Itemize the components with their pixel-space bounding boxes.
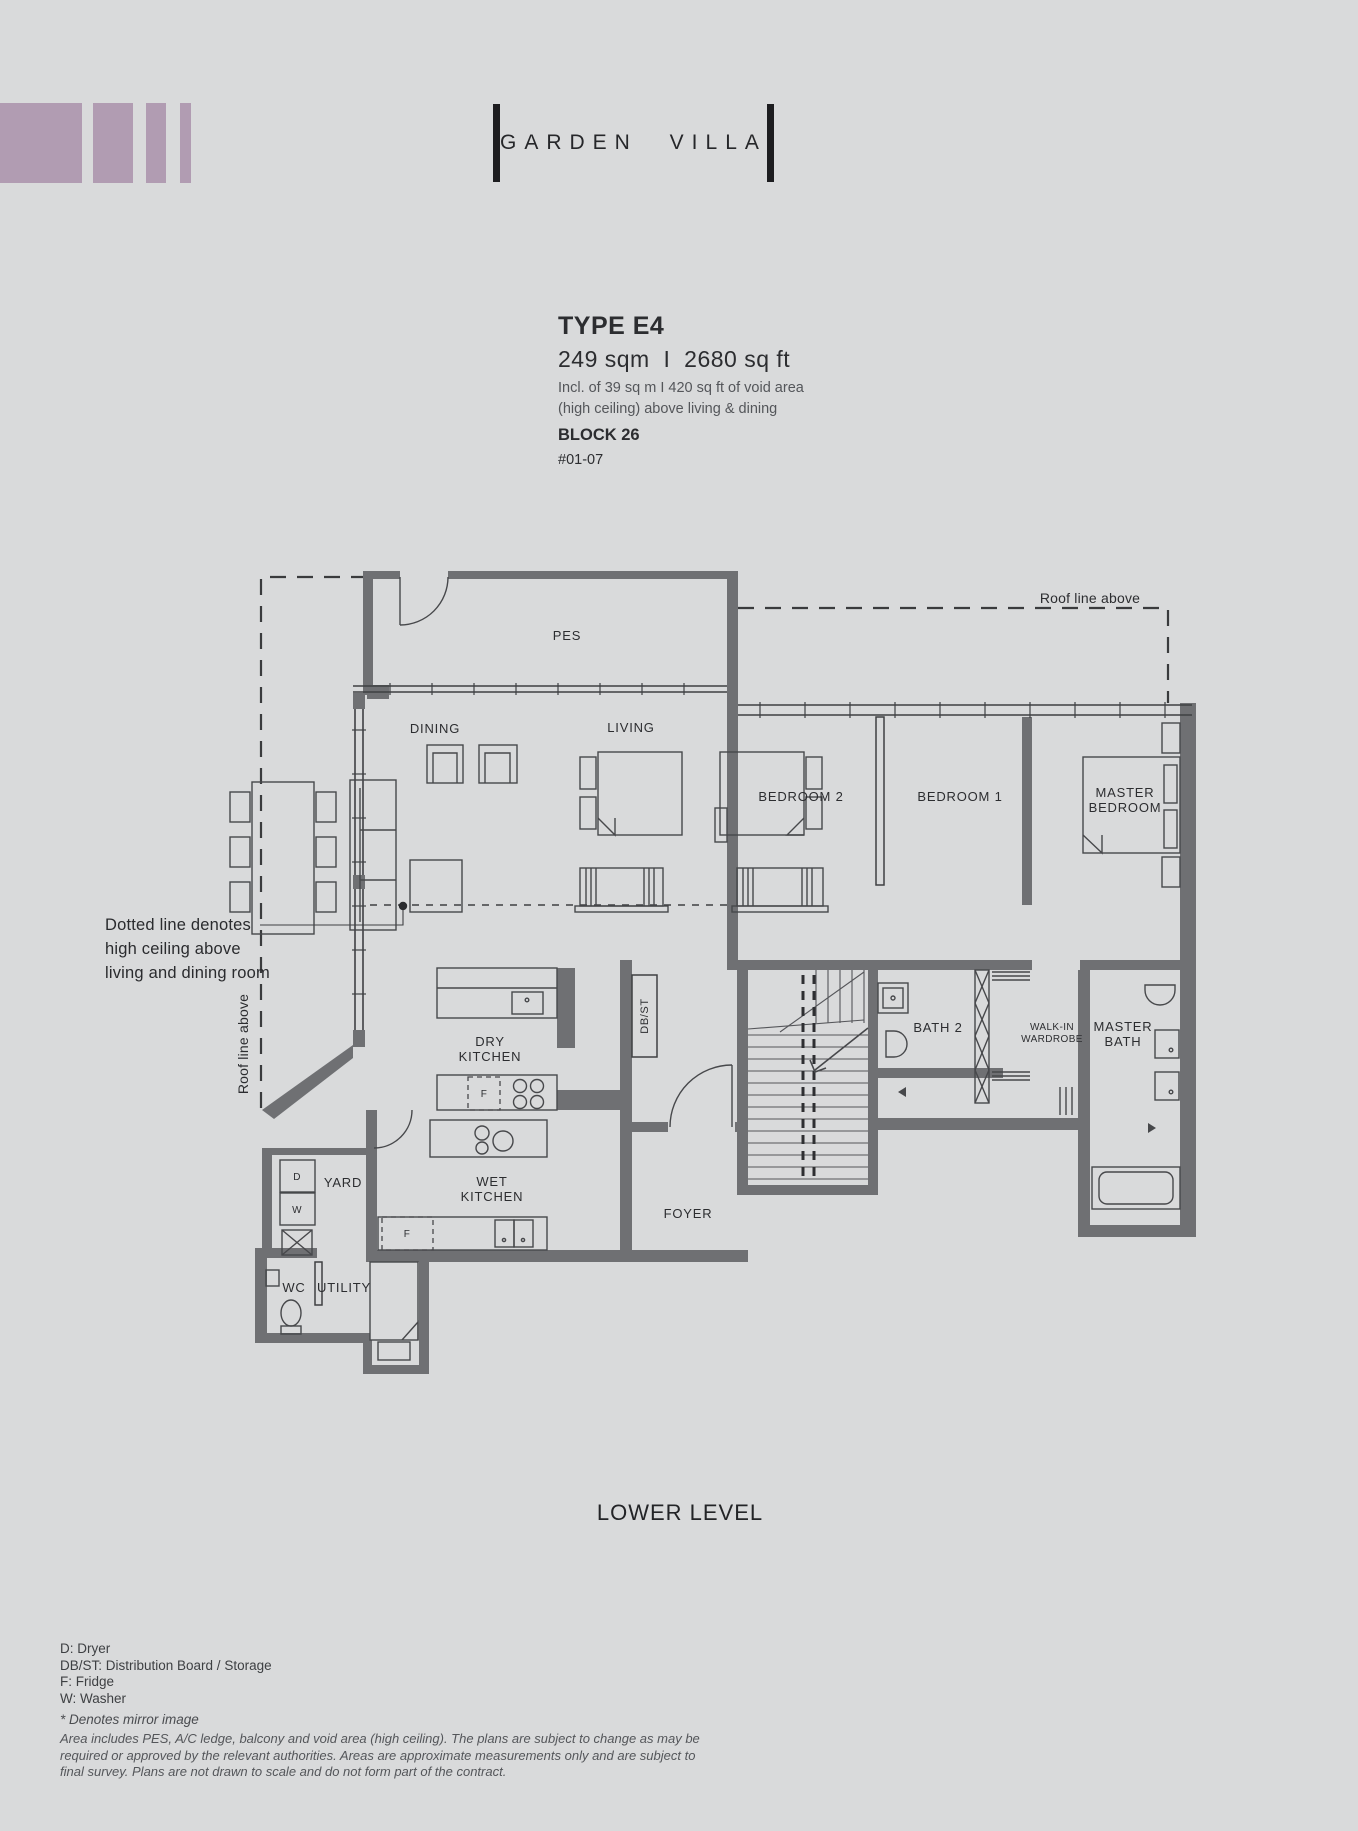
level-label: LOWER LEVEL bbox=[530, 1500, 830, 1526]
mark-fridge-dry: F bbox=[481, 1089, 488, 1100]
brand-name: GARDEN VILLA bbox=[500, 131, 767, 155]
room-label-wet-kitchen-1: WET bbox=[476, 1174, 507, 1189]
room-label-utility: UTILITY bbox=[317, 1280, 371, 1295]
legend-line-dryer: D: Dryer bbox=[60, 1641, 272, 1658]
mark-washer: W bbox=[292, 1205, 302, 1216]
room-label-foyer: FOYER bbox=[664, 1206, 713, 1221]
room-label-pes: PES bbox=[553, 628, 581, 643]
staircase bbox=[748, 970, 868, 1180]
dining-table bbox=[230, 782, 336, 934]
room-label-bedroom2: BEDROOM 2 bbox=[758, 789, 843, 804]
high-ceiling-annotation: Dotted line denotes high ceiling above l… bbox=[105, 916, 270, 982]
svg-text:Dotted line denotes: Dotted line denotes bbox=[105, 916, 251, 934]
room-label-master-bath-2: BATH bbox=[1105, 1034, 1142, 1049]
legend-line-fridge: F: Fridge bbox=[60, 1674, 272, 1691]
unit-area-note: Incl. of 39 sq m I 420 sq ft of void are… bbox=[558, 378, 804, 420]
room-label-bath2: BATH 2 bbox=[913, 1020, 962, 1035]
svg-text:living and dining room: living and dining room bbox=[105, 964, 270, 982]
room-label-dining: DINING bbox=[410, 721, 460, 736]
armchairs bbox=[427, 745, 517, 783]
room-label-yard: YARD bbox=[324, 1175, 362, 1190]
logo-bar-2 bbox=[93, 103, 133, 183]
window-bands bbox=[352, 683, 1192, 1047]
room-label-wet-kitchen-2: KITCHEN bbox=[461, 1189, 524, 1204]
unit-type: TYPE E4 bbox=[558, 312, 664, 341]
room-label-dry-kitchen-2: KITCHEN bbox=[459, 1049, 522, 1064]
mirror-note: * Denotes mirror image bbox=[60, 1712, 199, 1727]
left-bracket-icon bbox=[493, 104, 500, 182]
room-label-dry-kitchen-1: DRY bbox=[475, 1034, 505, 1049]
brand-title: GARDEN VILLA bbox=[493, 104, 746, 182]
pes-gate-door bbox=[400, 577, 448, 625]
disclaimer-line-2: required or approved by the relevant aut… bbox=[60, 1748, 710, 1765]
sofa bbox=[350, 780, 396, 930]
logo-bar-3 bbox=[146, 103, 166, 183]
yard-door bbox=[374, 1110, 412, 1148]
roof-line-label-left: Roof line above bbox=[235, 994, 251, 1094]
room-label-master-bedroom-2: BEDROOM bbox=[1089, 800, 1162, 815]
brand-logo bbox=[0, 103, 200, 183]
roof-line-label-right: Roof line above bbox=[1040, 590, 1140, 606]
tv-console bbox=[715, 808, 727, 842]
unit-area-note-line1: Incl. of 39 sq m I 420 sq ft of void are… bbox=[558, 378, 804, 399]
disclaimer-line-1: Area includes PES, A/C ledge, balcony an… bbox=[60, 1731, 710, 1748]
high-ceiling-dotted-line bbox=[260, 902, 737, 925]
unit-block: BLOCK 26 bbox=[558, 426, 640, 445]
legend-line-washer: W: Washer bbox=[60, 1691, 272, 1708]
room-label-walkin-2: WARDROBE bbox=[1021, 1034, 1083, 1045]
room-label-bedroom1: BEDROOM 1 bbox=[917, 789, 1002, 804]
legend-line-dbst: DB/ST: Distribution Board / Storage bbox=[60, 1658, 272, 1675]
floor-plan-drawing: Roof line above Roof line above Dotted l… bbox=[40, 480, 1210, 1400]
bath2-door-marker bbox=[898, 1087, 906, 1097]
unit-area-note-line2: (high ceiling) above living & dining bbox=[558, 399, 804, 420]
room-label-walkin-1: WALK-IN bbox=[1030, 1022, 1074, 1033]
utility-fittings bbox=[370, 1262, 418, 1360]
room-label-master-bedroom-1: MASTER bbox=[1096, 785, 1155, 800]
bedroom2-bed bbox=[575, 752, 682, 912]
foyer-entry-door bbox=[670, 1065, 732, 1127]
room-label-living: LIVING bbox=[607, 720, 654, 735]
mark-dryer: D bbox=[293, 1172, 301, 1183]
logo-bar-1 bbox=[0, 103, 82, 183]
room-label-dbst: DB/ST bbox=[639, 998, 651, 1033]
room-label-wc: WC bbox=[282, 1280, 305, 1295]
disclaimer: Area includes PES, A/C ledge, balcony an… bbox=[60, 1731, 710, 1781]
svg-text:high ceiling above: high ceiling above bbox=[105, 940, 241, 958]
right-bracket-icon bbox=[767, 104, 774, 182]
unit-number: #01-07 bbox=[558, 452, 603, 468]
master-bath-door-marker bbox=[1148, 1123, 1156, 1133]
disclaimer-line-3: final survey. Plans are not drawn to sca… bbox=[60, 1764, 710, 1781]
room-label-master-bath-1: MASTER bbox=[1094, 1019, 1153, 1034]
unit-area: 249 sqm I 2680 sq ft bbox=[558, 346, 790, 373]
mark-fridge-wet: F bbox=[404, 1229, 411, 1240]
bath2-fittings bbox=[878, 983, 908, 1057]
brochure-page: GARDEN VILLA TYPE E4 249 sqm I 2680 sq f… bbox=[0, 0, 1358, 1831]
legend: D: Dryer DB/ST: Distribution Board / Sto… bbox=[60, 1641, 272, 1707]
logo-bar-4 bbox=[180, 103, 191, 183]
